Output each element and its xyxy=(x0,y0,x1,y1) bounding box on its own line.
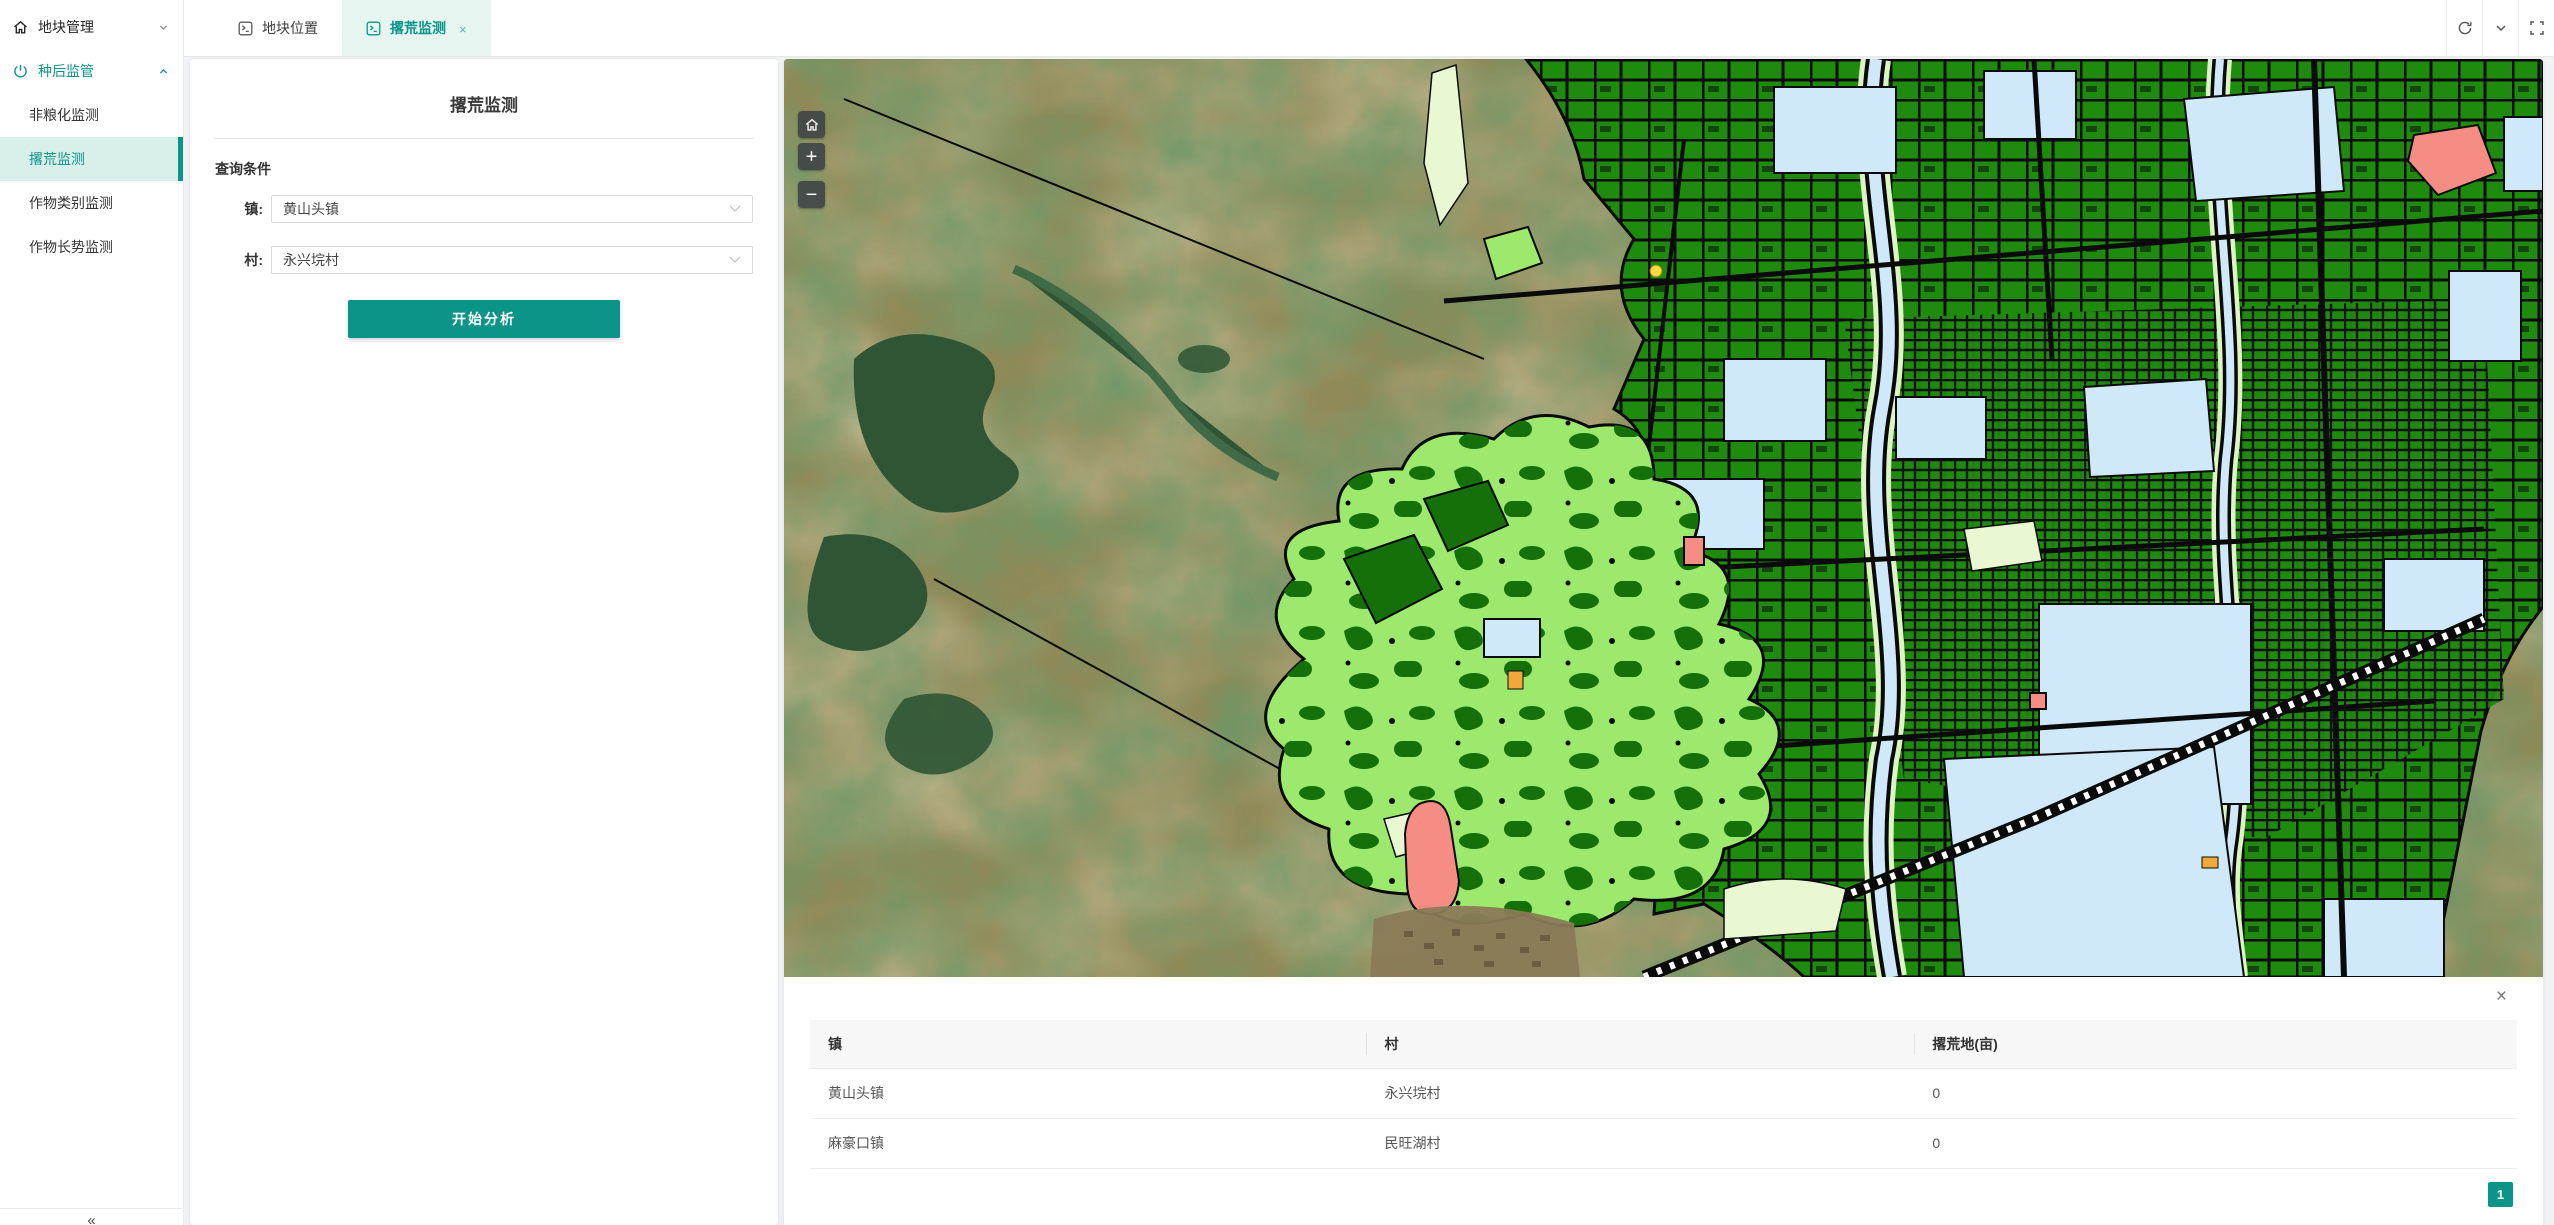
panel-icon xyxy=(238,21,253,36)
sidebar-item-label: 种后监管 xyxy=(38,61,94,81)
refresh-icon xyxy=(2457,20,2473,36)
query-panel: 撂荒监测 查询条件 镇: 黄山头镇 村: 永兴垸村 xyxy=(190,59,778,1225)
main-area: 地块位置 撂荒监测 × xyxy=(184,0,2554,1225)
town-select[interactable]: 黄山头镇 xyxy=(271,195,753,223)
sidebar-item-post-planting-supervision[interactable]: 种后监管 xyxy=(0,49,183,93)
table-row: 麻豪口镇 民旺湖村 0 xyxy=(810,1118,2517,1168)
column-village: 村 xyxy=(1366,1020,1914,1068)
pagination: 1 xyxy=(810,1182,2517,1207)
sidebar-collapse-button[interactable]: « xyxy=(0,1208,183,1225)
chevron-down-icon xyxy=(2494,21,2508,35)
cell-town: 黄山头镇 xyxy=(810,1068,1366,1118)
query-conditions-label: 查询条件 xyxy=(215,159,778,179)
village-label: 村: xyxy=(215,250,271,270)
tab-fallow-monitoring[interactable]: 撂荒监测 × xyxy=(342,0,491,56)
close-tab-icon[interactable]: × xyxy=(459,22,467,37)
power-icon xyxy=(12,63,29,80)
tab-plot-location[interactable]: 地块位置 xyxy=(214,0,342,56)
sidebar-item-crop-category-monitoring[interactable]: 作物类别监测 xyxy=(0,181,183,225)
town-label: 镇: xyxy=(215,199,271,219)
sidebar-item-label: 地块管理 xyxy=(38,17,94,37)
village-select[interactable]: 永兴垸村 xyxy=(271,246,753,274)
sidebar-item-fallow-monitoring[interactable]: 撂荒监测 xyxy=(0,137,183,181)
content: 撂荒监测 查询条件 镇: 黄山头镇 村: 永兴垸村 xyxy=(184,57,2554,1225)
refresh-button[interactable] xyxy=(2446,0,2482,56)
app: 地块管理 种后监管 非粮化监测 撂荒监测 作物类别监测 作物长势监测 « xyxy=(0,0,2554,1225)
map-zoom-in-button[interactable]: + xyxy=(798,143,825,170)
column-fallow-area: 撂荒地(亩) xyxy=(1914,1020,2517,1068)
village-select-value: 永兴垸村 xyxy=(283,250,339,270)
table-header-row: 镇 村 撂荒地(亩) xyxy=(810,1020,2517,1068)
cell-village: 永兴垸村 xyxy=(1366,1068,1914,1118)
sidebar-item-non-grain-monitoring[interactable]: 非粮化监测 xyxy=(0,93,183,137)
chevron-down-icon xyxy=(729,205,741,213)
map-home-button[interactable] xyxy=(798,111,825,138)
panel-title: 撂荒监测 xyxy=(190,91,778,116)
collapse-icon: « xyxy=(87,1212,95,1225)
cell-fallow-area: 0 xyxy=(1914,1118,2517,1168)
sidebar-item-plot-management[interactable]: 地块管理 xyxy=(0,5,183,49)
town-field-row: 镇: 黄山头镇 xyxy=(190,195,778,223)
column-town: 镇 xyxy=(810,1020,1366,1068)
tab-label: 撂荒监测 xyxy=(390,18,446,38)
tab-bar: 地块位置 撂荒监测 × xyxy=(184,0,491,56)
cell-village: 民旺湖村 xyxy=(1366,1118,1914,1168)
map-results-panel: + − × 镇 村 撂荒地(亩) xyxy=(784,59,2543,1225)
sidebar: 地块管理 种后监管 非粮化监测 撂荒监测 作物类别监测 作物长势监测 « xyxy=(0,0,184,1225)
fullscreen-icon xyxy=(2529,20,2545,36)
panel-icon xyxy=(366,21,381,36)
tab-label: 地块位置 xyxy=(262,18,318,38)
chevron-up-icon xyxy=(158,66,169,77)
satellite-map[interactable]: + − xyxy=(784,59,2543,977)
close-results-icon[interactable]: × xyxy=(2496,987,2507,1006)
fullscreen-button[interactable] xyxy=(2518,0,2554,56)
map-zoom-out-button[interactable]: − xyxy=(798,181,825,208)
table-row: 黄山头镇 永兴垸村 0 xyxy=(810,1068,2517,1118)
map-canvas xyxy=(784,59,2543,977)
page-1-button[interactable]: 1 xyxy=(2488,1182,2513,1207)
chevron-down-icon xyxy=(729,256,741,264)
results-panel: × 镇 村 撂荒地(亩) 黄山头镇 xyxy=(784,977,2543,1225)
start-analysis-button[interactable]: 开始分析 xyxy=(348,300,620,338)
home-icon xyxy=(804,117,820,133)
collapse-tabs-button[interactable] xyxy=(2482,0,2518,56)
cell-town: 麻豪口镇 xyxy=(810,1118,1366,1168)
cell-fallow-area: 0 xyxy=(1914,1068,2517,1118)
topbar: 地块位置 撂荒监测 × xyxy=(184,0,2554,57)
chevron-down-icon xyxy=(158,22,169,33)
village-field-row: 村: 永兴垸村 xyxy=(190,246,778,274)
divider xyxy=(214,138,754,139)
topbar-actions xyxy=(2446,0,2554,56)
sidebar-item-crop-growth-monitoring[interactable]: 作物长势监测 xyxy=(0,225,183,269)
results-table: 镇 村 撂荒地(亩) 黄山头镇 永兴垸村 0 xyxy=(810,1020,2517,1169)
map-controls: + − xyxy=(798,111,825,208)
home-icon xyxy=(12,19,29,36)
town-select-value: 黄山头镇 xyxy=(283,199,339,219)
